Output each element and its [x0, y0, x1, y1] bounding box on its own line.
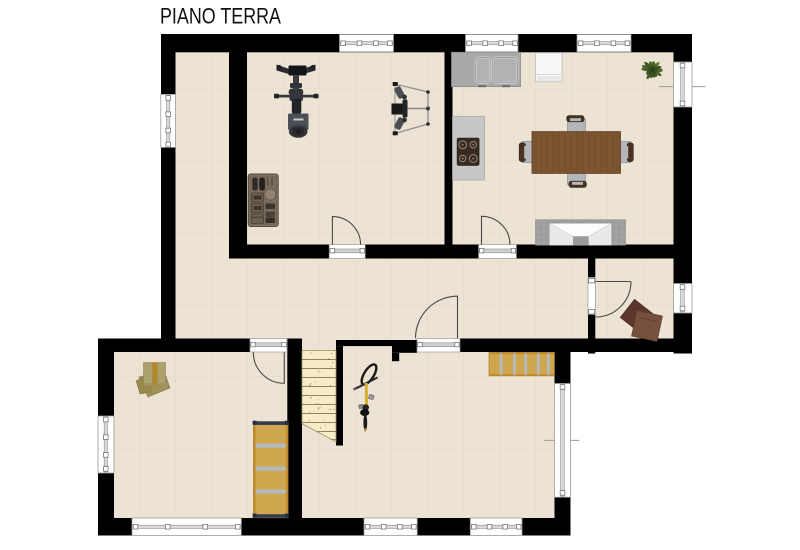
svg-text:PIANO TERRA: PIANO TERRA [160, 4, 281, 29]
